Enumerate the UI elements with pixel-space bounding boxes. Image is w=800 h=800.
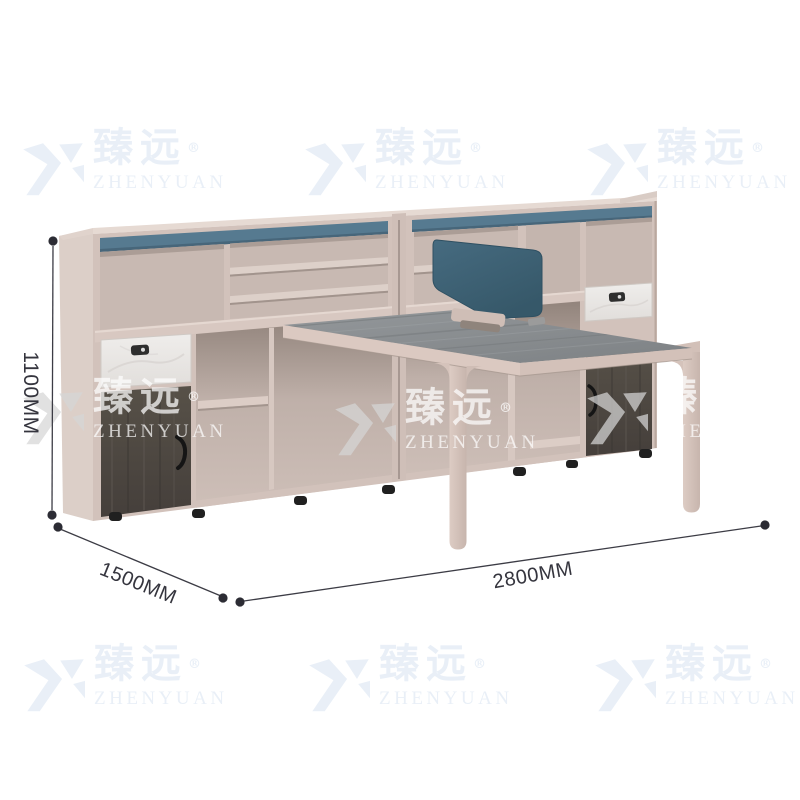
product-photo-canvas: 臻远®ZHENYUAN 臻远®ZHENYUAN 臻远®ZHENYUAN 臻远®Z…	[0, 0, 800, 800]
width-dimension-line	[235, 520, 769, 606]
dimension-annotations	[0, 0, 800, 800]
height-dimension-line	[47, 236, 57, 519]
height-dimension-label: 1100MM	[18, 351, 42, 434]
